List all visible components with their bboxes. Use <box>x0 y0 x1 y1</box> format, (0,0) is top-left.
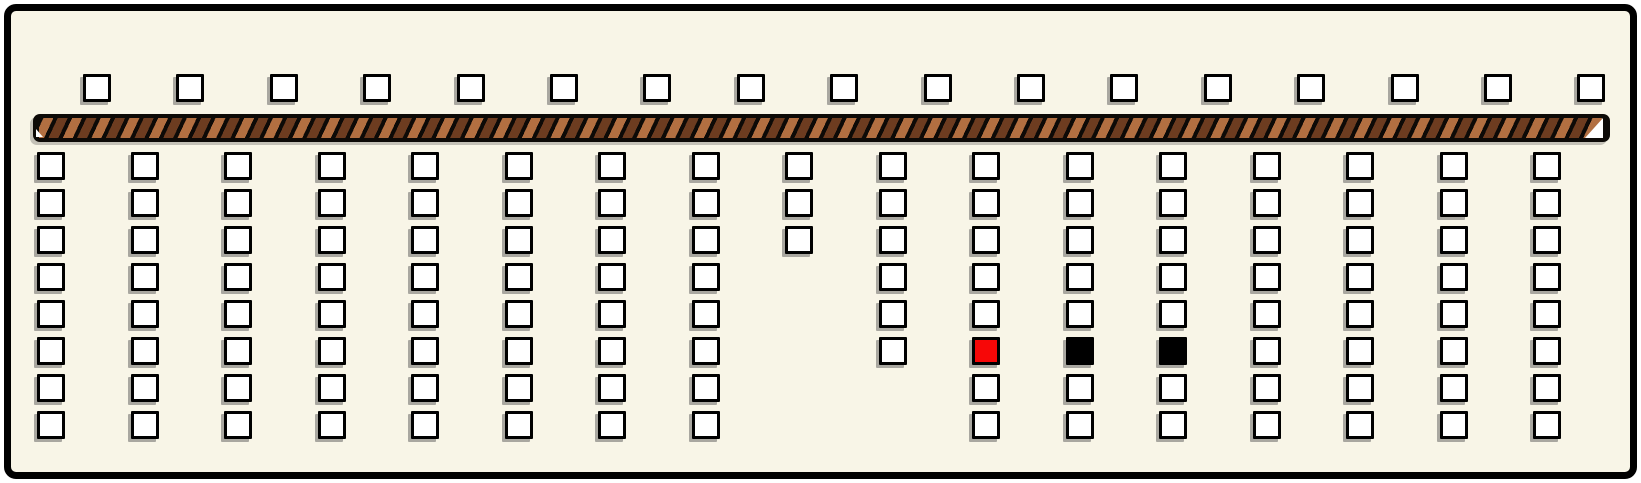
cell-c2-r7[interactable] <box>131 374 159 402</box>
cell-c5-r5[interactable] <box>411 300 439 328</box>
cell-c4-r7[interactable] <box>318 374 346 402</box>
cell-c4-r6[interactable] <box>318 337 346 365</box>
cell-c11-r8[interactable] <box>972 411 1000 439</box>
cell-c13-r8[interactable] <box>1159 411 1187 439</box>
cell-c16-r7[interactable] <box>1440 374 1468 402</box>
cell-c13-r1[interactable] <box>1159 152 1187 180</box>
cell-c5-r3[interactable] <box>411 226 439 254</box>
cell-c12-r4[interactable] <box>1066 263 1094 291</box>
cell-c8-r7[interactable] <box>692 374 720 402</box>
cell-c1-r4[interactable] <box>37 263 65 291</box>
cell-c3-r6[interactable] <box>224 337 252 365</box>
cell-c3-r4[interactable] <box>224 263 252 291</box>
cell-c17-r6[interactable] <box>1533 337 1561 365</box>
cell-c11-r7[interactable] <box>972 374 1000 402</box>
cell-c5-r6[interactable] <box>411 337 439 365</box>
cell-c14-r3[interactable] <box>1253 226 1281 254</box>
cell-c16-r8[interactable] <box>1440 411 1468 439</box>
cell-c10-r1[interactable] <box>879 152 907 180</box>
cell-c6-r1[interactable] <box>505 152 533 180</box>
cell-c7-r4[interactable] <box>598 263 626 291</box>
cell-c3-r2[interactable] <box>224 189 252 217</box>
cell-c10-r3[interactable] <box>879 226 907 254</box>
cell-c7-r8[interactable] <box>598 411 626 439</box>
cell-c14-r2[interactable] <box>1253 189 1281 217</box>
cell-c2-r2[interactable] <box>131 189 159 217</box>
cell-c17-r1[interactable] <box>1533 152 1561 180</box>
cell-c5-r2[interactable] <box>411 189 439 217</box>
cell-c8-r2[interactable] <box>692 189 720 217</box>
cell-c13-r3[interactable] <box>1159 226 1187 254</box>
cell-c14-r7[interactable] <box>1253 374 1281 402</box>
cell-c13-r4[interactable] <box>1159 263 1187 291</box>
cell-c11-r5[interactable] <box>972 300 1000 328</box>
cell-c12-r6-black[interactable] <box>1066 337 1094 365</box>
cell-c14-r6[interactable] <box>1253 337 1281 365</box>
cell-c16-r6[interactable] <box>1440 337 1468 365</box>
cell-c11-r1[interactable] <box>972 152 1000 180</box>
cell-c11-r2[interactable] <box>972 189 1000 217</box>
cell-c9-r3[interactable] <box>785 226 813 254</box>
cell-c8-r6[interactable] <box>692 337 720 365</box>
cell-c8-r4[interactable] <box>692 263 720 291</box>
cell-c7-r2[interactable] <box>598 189 626 217</box>
cell-c4-r4[interactable] <box>318 263 346 291</box>
cell-c1-r1[interactable] <box>37 152 65 180</box>
cell-c6-r2[interactable] <box>505 189 533 217</box>
cell-c16-r5[interactable] <box>1440 300 1468 328</box>
cell-c10-r2[interactable] <box>879 189 907 217</box>
cell-c7-r1[interactable] <box>598 152 626 180</box>
cell-c1-r7[interactable] <box>37 374 65 402</box>
cell-c6-r4[interactable] <box>505 263 533 291</box>
cell-c7-r5[interactable] <box>598 300 626 328</box>
cell-c10-r5[interactable] <box>879 300 907 328</box>
cell-c6-r7[interactable] <box>505 374 533 402</box>
cell-c9-r1[interactable] <box>785 152 813 180</box>
cell-c10-r6[interactable] <box>879 337 907 365</box>
cell-c15-r2[interactable] <box>1346 189 1374 217</box>
cell-c7-r7[interactable] <box>598 374 626 402</box>
cell-c16-r3[interactable] <box>1440 226 1468 254</box>
cell-c9-r2[interactable] <box>785 189 813 217</box>
cell-c14-r5[interactable] <box>1253 300 1281 328</box>
cell-c17-r2[interactable] <box>1533 189 1561 217</box>
cell-c4-r3[interactable] <box>318 226 346 254</box>
cell-c2-r5[interactable] <box>131 300 159 328</box>
cell-c17-r5[interactable] <box>1533 300 1561 328</box>
cell-c8-r3[interactable] <box>692 226 720 254</box>
cell-c6-r5[interactable] <box>505 300 533 328</box>
cell-c3-r8[interactable] <box>224 411 252 439</box>
cell-c2-r6[interactable] <box>131 337 159 365</box>
cell-c6-r3[interactable] <box>505 226 533 254</box>
cell-c15-r1[interactable] <box>1346 152 1374 180</box>
cell-c17-r7[interactable] <box>1533 374 1561 402</box>
cell-c11-r6-red[interactable] <box>972 337 1000 365</box>
cell-c1-r8[interactable] <box>37 411 65 439</box>
cell-c13-r7[interactable] <box>1159 374 1187 402</box>
cell-c3-r1[interactable] <box>224 152 252 180</box>
cell-c15-r6[interactable] <box>1346 337 1374 365</box>
cell-c11-r3[interactable] <box>972 226 1000 254</box>
cell-c6-r6[interactable] <box>505 337 533 365</box>
cell-c17-r4[interactable] <box>1533 263 1561 291</box>
cell-c6-r8[interactable] <box>505 411 533 439</box>
cell-c14-r1[interactable] <box>1253 152 1281 180</box>
cell-c1-r6[interactable] <box>37 337 65 365</box>
cell-c1-r5[interactable] <box>37 300 65 328</box>
cell-c17-r8[interactable] <box>1533 411 1561 439</box>
cell-c15-r4[interactable] <box>1346 263 1374 291</box>
cell-c15-r8[interactable] <box>1346 411 1374 439</box>
cell-c14-r4[interactable] <box>1253 263 1281 291</box>
cell-c5-r1[interactable] <box>411 152 439 180</box>
cell-c2-r8[interactable] <box>131 411 159 439</box>
cell-c12-r1[interactable] <box>1066 152 1094 180</box>
cell-grid <box>0 0 1641 483</box>
cell-c15-r5[interactable] <box>1346 300 1374 328</box>
cell-c8-r5[interactable] <box>692 300 720 328</box>
cell-c4-r5[interactable] <box>318 300 346 328</box>
cell-c5-r4[interactable] <box>411 263 439 291</box>
cell-c15-r7[interactable] <box>1346 374 1374 402</box>
cell-c4-r1[interactable] <box>318 152 346 180</box>
cell-c5-r7[interactable] <box>411 374 439 402</box>
cell-c8-r1[interactable] <box>692 152 720 180</box>
cell-c1-r3[interactable] <box>37 226 65 254</box>
cell-c12-r5[interactable] <box>1066 300 1094 328</box>
cell-c2-r3[interactable] <box>131 226 159 254</box>
cell-c8-r8[interactable] <box>692 411 720 439</box>
cell-c2-r4[interactable] <box>131 263 159 291</box>
cell-c11-r4[interactable] <box>972 263 1000 291</box>
cell-c12-r8[interactable] <box>1066 411 1094 439</box>
cell-c2-r1[interactable] <box>131 152 159 180</box>
cell-c3-r5[interactable] <box>224 300 252 328</box>
cell-c16-r2[interactable] <box>1440 189 1468 217</box>
cell-c16-r1[interactable] <box>1440 152 1468 180</box>
cell-c7-r6[interactable] <box>598 337 626 365</box>
cell-c16-r4[interactable] <box>1440 263 1468 291</box>
cell-c17-r3[interactable] <box>1533 226 1561 254</box>
cell-c10-r4[interactable] <box>879 263 907 291</box>
cell-c3-r7[interactable] <box>224 374 252 402</box>
cell-c13-r6-black[interactable] <box>1159 337 1187 365</box>
cell-c4-r8[interactable] <box>318 411 346 439</box>
cell-c12-r7[interactable] <box>1066 374 1094 402</box>
cell-c12-r2[interactable] <box>1066 189 1094 217</box>
cell-c15-r3[interactable] <box>1346 226 1374 254</box>
cell-c14-r8[interactable] <box>1253 411 1281 439</box>
cell-c1-r2[interactable] <box>37 189 65 217</box>
cell-c13-r5[interactable] <box>1159 300 1187 328</box>
board-canvas <box>0 0 1641 483</box>
cell-c13-r2[interactable] <box>1159 189 1187 217</box>
cell-c3-r3[interactable] <box>224 226 252 254</box>
cell-c12-r3[interactable] <box>1066 226 1094 254</box>
cell-c7-r3[interactable] <box>598 226 626 254</box>
cell-c5-r8[interactable] <box>411 411 439 439</box>
cell-c4-r2[interactable] <box>318 189 346 217</box>
